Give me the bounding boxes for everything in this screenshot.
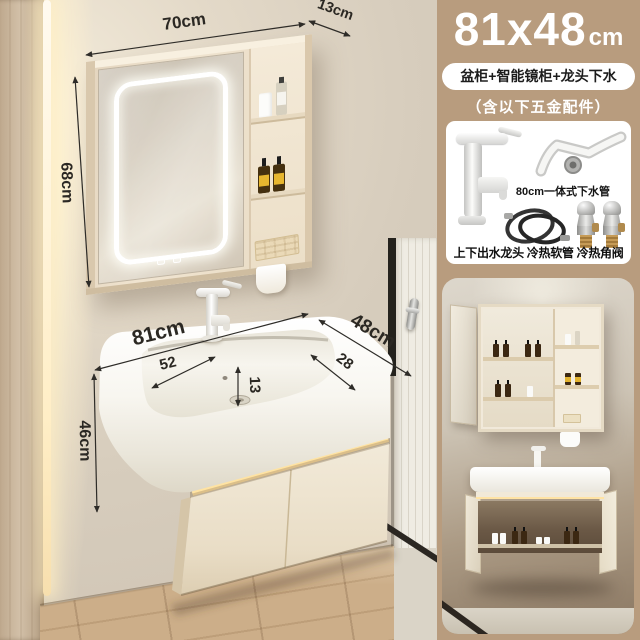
inset-bottle [525,344,531,357]
dim-label-mirror-height: 68cm [57,162,75,203]
inset-open-mirror-door [450,304,477,425]
dim-label-bowl-width: 52 [158,353,178,374]
size-badge: 81x48cm [437,2,640,56]
valve-outlet [592,223,599,232]
inset-open-cabinet [476,492,604,582]
product-inset-photo [442,278,634,634]
dim-arrow-mirror-height [75,77,89,287]
drain-pipe-graphic [531,123,629,181]
dimension-annotations: 70cm 13cm 68cm 81cm 48cm 52 28 13 46cm [0,0,437,640]
dim-label-mirror-depth: 13cm [315,0,355,24]
inset-bottle [575,373,581,385]
inset-shelf [483,357,553,361]
inset-bottle [575,331,580,345]
inset-mirror-cabinet [478,304,604,432]
inset-cabinet-shelf [478,544,602,548]
inset-bottle [535,344,541,357]
inset-jar [536,537,542,544]
size-unit: cm [589,24,624,51]
inset-bottle [492,533,498,544]
angle-valve [577,201,595,249]
inset-shelf [555,345,599,349]
inset-bottle [512,531,518,544]
inset-cabinet-storage [478,501,602,553]
inset-bottle [505,384,511,397]
dim-arrow-basin-width [95,314,308,370]
dim-label-bowl-depth: 28 [333,350,357,374]
inset-tissue-box [563,414,581,423]
inset-cabinet-interior [483,309,553,427]
dim-arrow-mirror-depth [309,21,350,36]
dim-label-bowl-height: 13 [246,376,264,393]
inset-bottle [565,373,571,385]
inset-bottle [521,531,527,544]
inset-bottle [503,344,509,357]
pipe-label: 80cm一体式下水管 [497,183,629,199]
dim-label-basin-depth: 48cm [347,310,399,353]
dim-label-basin-width: 81cm [130,315,188,350]
dim-arrow-cabinet-height [94,374,97,512]
inset-floor [442,608,634,634]
hardware-card: 80cm一体式下水管 [446,121,631,264]
angle-valve [603,201,621,249]
size-value: 81x48 [454,3,587,55]
inset-bottle [493,344,499,357]
product-image: 70cm 13cm 68cm 81cm 48cm 52 28 13 46cm 8… [0,0,640,640]
faucet-base [458,216,486,225]
inset-shelf [555,385,599,389]
inset-cabinet-light-strip [476,492,604,499]
info-panel: 81x48cm 盆柜+智能镜柜+龙头下水 （含以下五金配件） 80cm一体式下水… [437,0,640,640]
inset-bottle [565,334,571,345]
bundle-pill: 盆柜+智能镜柜+龙头下水 [442,63,635,90]
accessories-note: （含以下五金配件） [437,96,640,117]
inset-basin [470,467,610,492]
inset-bottle [495,384,501,397]
inset-cabinet-shadow [470,580,614,596]
valve-cap [577,201,595,215]
valve-outlet [618,223,625,232]
inset-jar [544,537,550,544]
valve-cap [603,201,621,215]
inset-bottle [500,533,506,544]
inset-hanging-tissue [560,432,580,447]
inset-floor-track [442,599,499,634]
hardware-caption: 上下出水龙头 冷热软管 冷热角阀 [446,244,631,261]
inset-bottle [573,531,579,544]
main-scene: 70cm 13cm 68cm 81cm 48cm 52 28 13 46cm [0,0,437,640]
inset-bottle [564,531,570,544]
inset-bottle [527,386,533,397]
inset-shelf-column [553,309,599,427]
faucet-arm [456,133,508,144]
dim-label-cabinet-height: 46cm [76,420,94,461]
dim-label-mirror-width: 70cm [161,9,207,34]
inset-shelf [483,397,553,401]
